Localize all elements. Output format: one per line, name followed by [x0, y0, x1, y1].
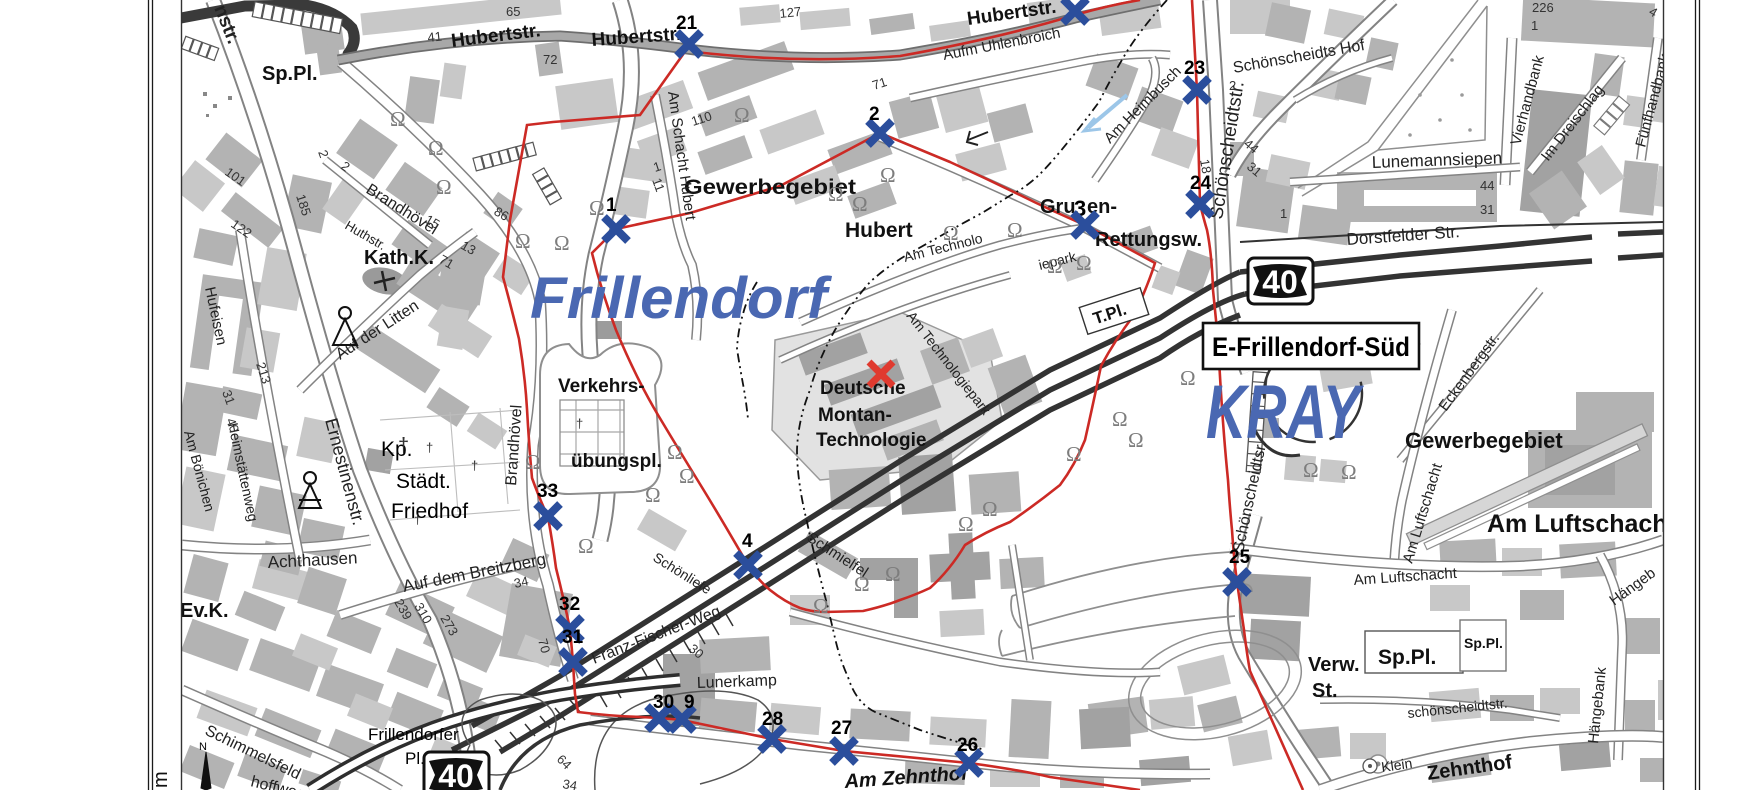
svg-text:m: m [150, 771, 172, 788]
svg-text:Ω: Ω [679, 464, 695, 488]
svg-text:Ω: Ω [525, 450, 541, 474]
svg-text:Ω: Ω [852, 192, 868, 216]
svg-text:Verkehrs-: Verkehrs- [558, 376, 645, 397]
svg-text:40: 40 [438, 758, 474, 790]
svg-text:23: 23 [1184, 58, 1205, 79]
svg-text:Städt.: Städt. [396, 470, 451, 493]
svg-text:†: † [471, 458, 478, 473]
svg-text:Am Luftschacht: Am Luftschacht [1487, 510, 1677, 538]
svg-text:72: 72 [543, 52, 557, 67]
svg-text:†: † [576, 416, 583, 431]
svg-text:Ω: Ω [1112, 407, 1128, 431]
svg-text:1: 1 [1531, 18, 1538, 33]
svg-text:Ω: Ω [589, 196, 605, 220]
svg-text:Ω: Ω [1303, 458, 1319, 482]
svg-text:Sp.Pl.: Sp.Pl. [262, 63, 318, 85]
svg-text:34: 34 [561, 776, 578, 790]
svg-text:31: 31 [562, 627, 584, 648]
svg-text:St.: St. [1312, 680, 1338, 702]
svg-text:†: † [414, 512, 421, 527]
svg-text:Sp.Pl.: Sp.Pl. [1464, 635, 1503, 651]
svg-text:Montan-: Montan- [818, 405, 892, 426]
svg-text:2: 2 [869, 104, 880, 125]
svg-text:41: 41 [427, 29, 443, 45]
svg-text:Hubert: Hubert [845, 219, 913, 242]
svg-text:Technologie: Technologie [816, 430, 926, 451]
svg-text:Friedhof: Friedhof [391, 500, 468, 523]
svg-text:Ω: Ω [554, 231, 570, 255]
svg-text:übungspl.: übungspl. [571, 451, 662, 472]
svg-text:Ω: Ω [428, 136, 444, 160]
svg-text:Ω: Ω [982, 497, 998, 521]
svg-text:Ω: Ω [645, 483, 661, 507]
svg-text:44: 44 [1480, 178, 1494, 193]
svg-text:27: 27 [831, 718, 852, 739]
svg-text:Pl.: Pl. [405, 749, 425, 768]
svg-text:2: 2 [1229, 78, 1236, 93]
svg-text:Ω: Ω [1066, 442, 1082, 466]
svg-text:32: 32 [559, 594, 580, 615]
svg-text:E-Frillendorf-Süd: E-Frillendorf-Süd [1212, 332, 1410, 362]
svg-text:Ω: Ω [854, 572, 870, 596]
svg-text:Ω: Ω [734, 103, 750, 127]
svg-text:34: 34 [513, 573, 530, 591]
svg-text:Frillendorfer: Frillendorfer [368, 725, 459, 744]
svg-text:30: 30 [653, 692, 674, 713]
svg-text:Ev.K.: Ev.K. [180, 600, 229, 622]
svg-text:Sp.Pl.: Sp.Pl. [1378, 646, 1436, 669]
svg-text:33: 33 [537, 481, 558, 502]
svg-text:Ω: Ω [667, 440, 683, 464]
svg-text:Lunerkamp: Lunerkamp [697, 672, 778, 692]
svg-text:Ω: Ω [828, 182, 844, 206]
svg-text:Ω: Ω [436, 175, 452, 199]
svg-text:4: 4 [742, 531, 753, 552]
svg-text:†: † [398, 435, 409, 457]
svg-text:Gru: Gru [1040, 196, 1076, 218]
svg-text:Kath.K.: Kath.K. [364, 247, 434, 269]
svg-text:Ω: Ω [578, 534, 594, 558]
svg-text:KRAY: KRAY [1206, 370, 1365, 455]
svg-text:Ω: Ω [1128, 428, 1144, 452]
svg-text:24: 24 [1190, 173, 1212, 194]
svg-text:Ω: Ω [880, 163, 896, 187]
svg-text:31: 31 [1480, 202, 1494, 217]
svg-text:127: 127 [779, 4, 802, 21]
svg-text:Gewerbegebiet: Gewerbegebiet [1405, 428, 1563, 453]
svg-text:Ω: Ω [885, 562, 901, 586]
svg-text:1: 1 [1280, 206, 1287, 221]
svg-text:Ω: Ω [1341, 460, 1357, 484]
svg-text:Rettungsw.: Rettungsw. [1095, 229, 1202, 251]
svg-text:1: 1 [606, 195, 617, 216]
svg-text:N: N [199, 741, 207, 753]
svg-text:Frillendorf: Frillendorf [530, 266, 833, 331]
svg-text:Ω: Ω [1180, 366, 1196, 390]
svg-text:Ω: Ω [515, 229, 531, 253]
svg-text:26: 26 [957, 735, 978, 756]
svg-text:65: 65 [506, 4, 520, 19]
svg-text:Ω: Ω [958, 512, 974, 536]
svg-text:40: 40 [1262, 264, 1298, 300]
svg-text:9: 9 [684, 692, 695, 713]
svg-text:Ω: Ω [943, 221, 959, 245]
svg-text:Ω: Ω [390, 107, 406, 131]
svg-text:226: 226 [1532, 0, 1554, 15]
svg-text:†: † [426, 440, 433, 455]
svg-text:Ω: Ω [1076, 251, 1092, 275]
svg-text:Verw.: Verw. [1308, 654, 1360, 676]
svg-text:28: 28 [762, 709, 783, 730]
svg-text:Ω: Ω [813, 594, 829, 618]
svg-text:25: 25 [1229, 547, 1251, 568]
svg-text:Ω: Ω [1007, 218, 1023, 242]
svg-text:21: 21 [676, 13, 698, 34]
svg-text:Ω: Ω [1047, 254, 1063, 278]
